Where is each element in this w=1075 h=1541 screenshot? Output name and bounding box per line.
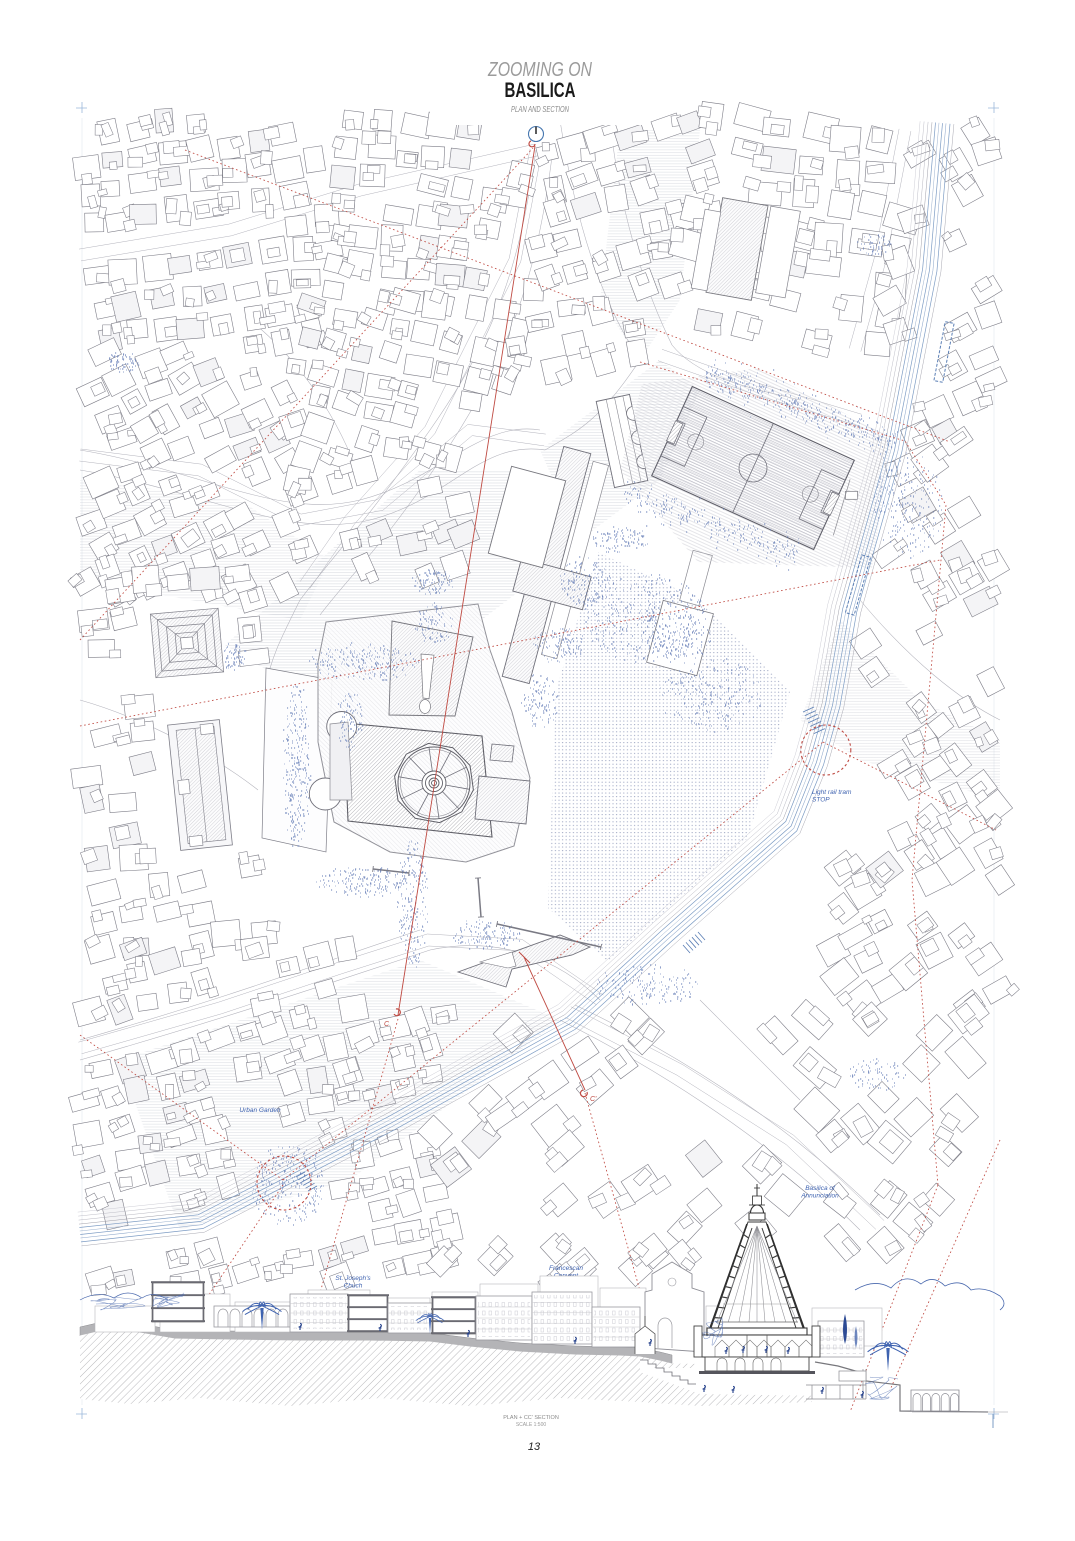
svg-text:13: 13 <box>528 1441 541 1453</box>
svg-text:Basilica of: Basilica of <box>805 1185 836 1192</box>
svg-text:Francescan: Francescan <box>549 1265 583 1272</box>
svg-text:Light rail tram: Light rail tram <box>812 789 852 796</box>
svg-text:Chuch: Chuch <box>344 1283 363 1290</box>
svg-text:Annunciation: Annunciation <box>800 1193 839 1200</box>
svg-text:PLAN + CC' SECTION: PLAN + CC' SECTION <box>503 1415 559 1421</box>
svg-text:BASILICA: BASILICA <box>505 79 576 102</box>
svg-text:ZOOMING ON: ZOOMING ON <box>487 59 592 81</box>
svg-text:St. Joseph's: St. Joseph's <box>335 1275 371 1282</box>
svg-text:PLAN AND SECTION: PLAN AND SECTION <box>511 105 569 114</box>
svg-text:STOP: STOP <box>812 797 830 804</box>
svg-text:C': C' <box>590 1096 597 1103</box>
svg-text:SCALE 1:500: SCALE 1:500 <box>516 1422 547 1428</box>
svg-text:Urban Garden: Urban Garden <box>239 1107 281 1114</box>
